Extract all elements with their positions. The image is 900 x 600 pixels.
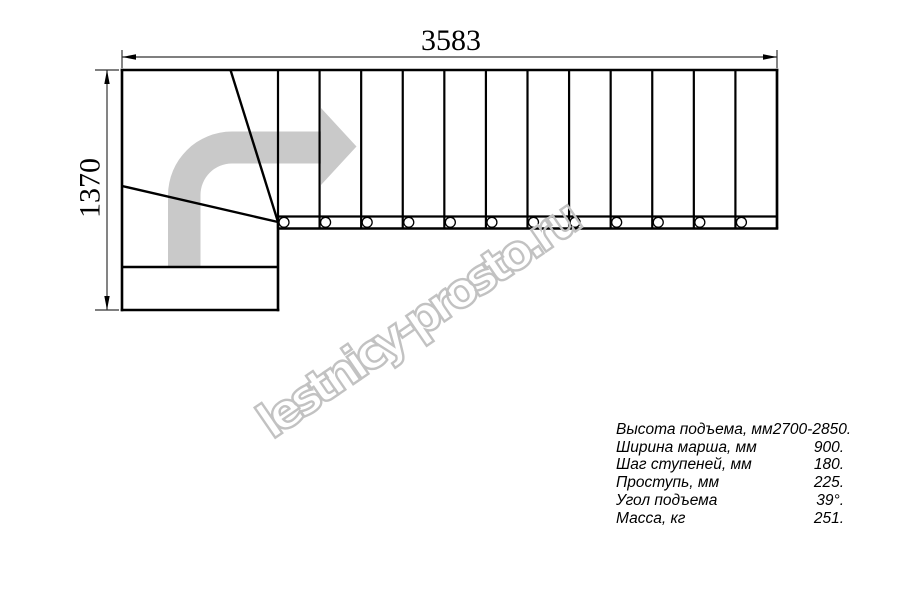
spec-value: 251. (814, 510, 844, 528)
spec-row-width: Ширина марша, мм 900. (616, 439, 844, 457)
baluster-circle (695, 217, 705, 227)
baluster-circle (279, 217, 289, 227)
dimension-left: 1370 (74, 70, 120, 310)
dimension-top-value: 3583 (421, 24, 481, 57)
spec-label: Проступь, мм (616, 474, 719, 492)
spec-value: 39°. (816, 492, 844, 510)
drawing-canvas: 3583 1370 lestnicy-prosto.ru Высота подъ… (0, 0, 900, 600)
baluster-circle (487, 217, 497, 227)
spec-row-angle: Угол подъема 39°. (616, 492, 844, 510)
dimension-top: 3583 (122, 24, 777, 68)
baluster-circle (445, 217, 455, 227)
baluster-circle (404, 217, 414, 227)
dim-arrowhead-bottom (104, 296, 109, 310)
spec-row-step: Шаг ступеней, мм 180. (616, 456, 844, 474)
baluster-circle (321, 217, 331, 227)
spec-label: Масса, кг (616, 510, 685, 528)
spec-row-mass: Масса, кг 251. (616, 510, 844, 528)
spec-label: Ширина марша, мм (616, 439, 757, 457)
dim-arrowhead-left (122, 54, 136, 59)
spec-value: 2700-2850. (773, 421, 851, 439)
spec-value: 180. (814, 456, 844, 474)
direction-arrow (168, 108, 357, 268)
dim-arrowhead-right (763, 54, 777, 59)
spec-row-tread: Проступь, мм 225. (616, 474, 844, 492)
spec-label: Шаг ступеней, мм (616, 456, 752, 474)
spec-value: 900. (814, 439, 844, 457)
dim-arrowhead-top (104, 70, 109, 84)
dimension-left-value: 1370 (74, 158, 107, 218)
spec-label: Высота подъема, мм (616, 421, 773, 439)
specs-table: Высота подъема, мм 2700-2850. Ширина мар… (616, 421, 844, 527)
spec-label: Угол подъема (616, 492, 717, 510)
baluster-circle (362, 217, 372, 227)
baluster-circle (653, 217, 663, 227)
spec-value: 225. (814, 474, 844, 492)
baluster-circle (612, 217, 622, 227)
baluster-circle (736, 217, 746, 227)
spec-row-height: Высота подъема, мм 2700-2850. (616, 421, 844, 439)
